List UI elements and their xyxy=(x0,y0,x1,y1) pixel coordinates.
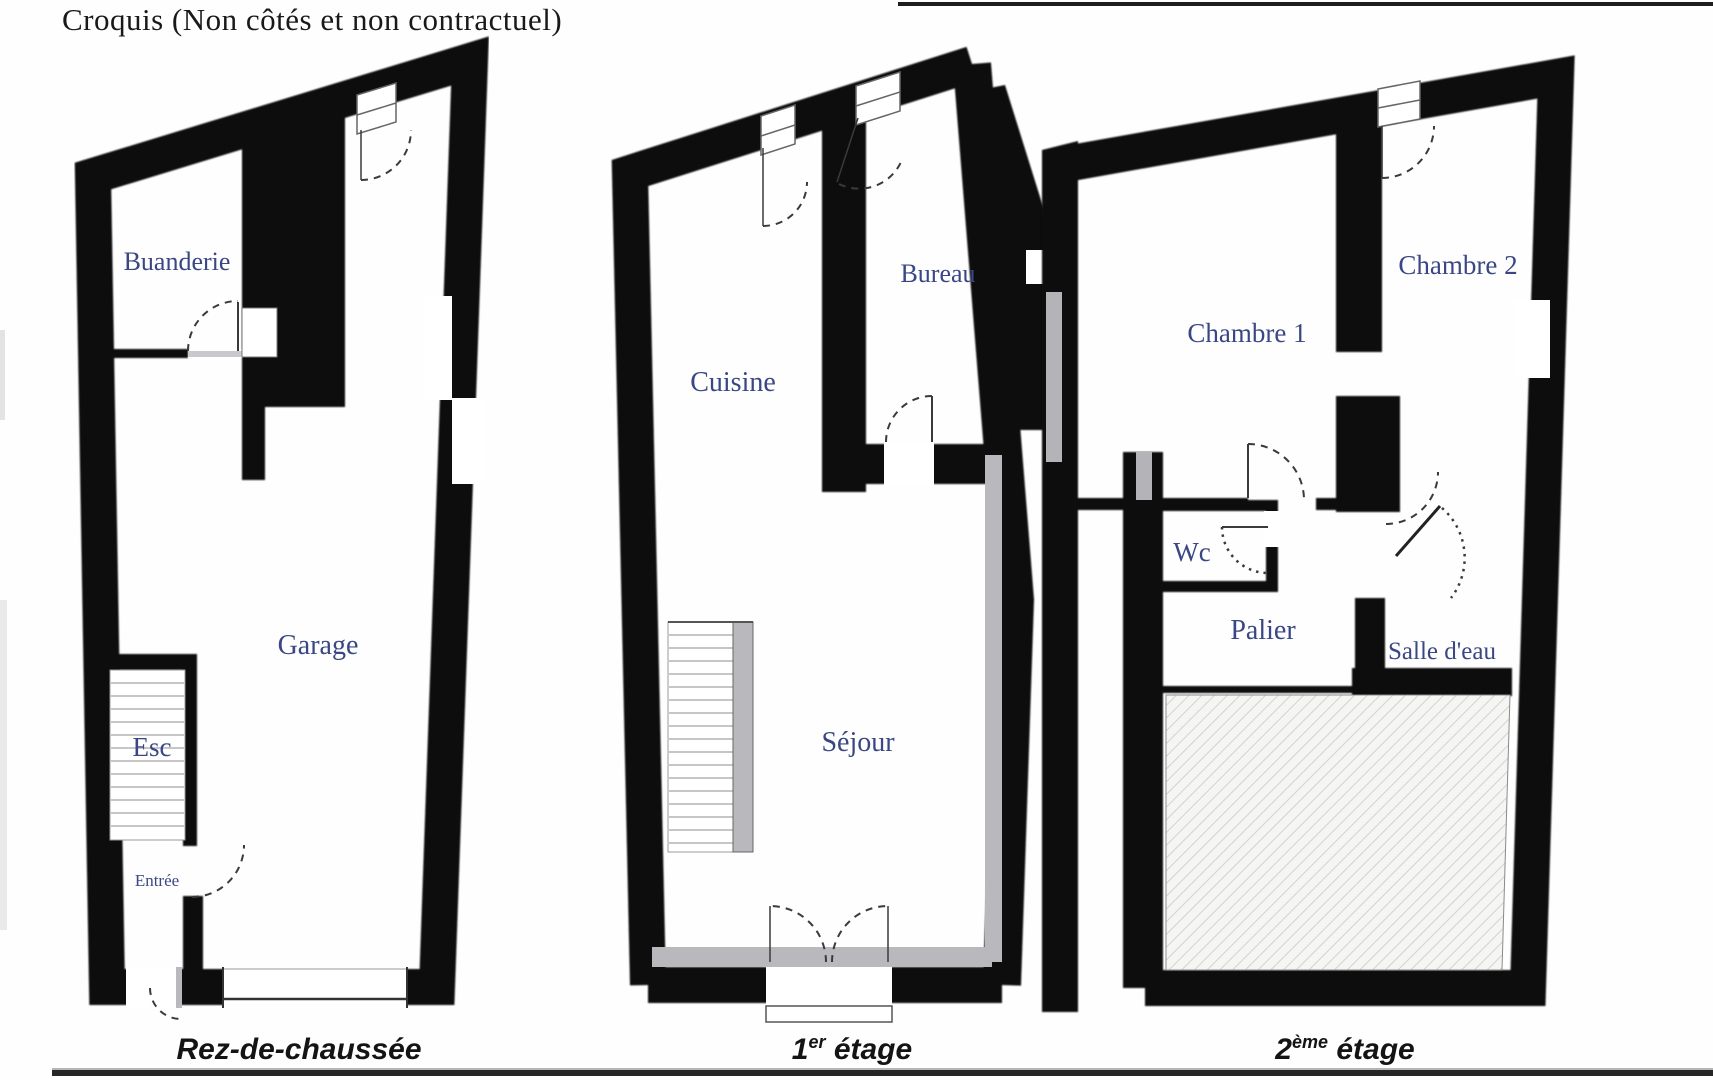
floor-caption-etage2: 2ème étage xyxy=(1275,1032,1414,1067)
buanderie-door-sill xyxy=(188,351,242,357)
room-label-chambre1: Chambre 1 xyxy=(1187,318,1306,348)
garage-door-gap xyxy=(223,967,407,1008)
french-door-stoop xyxy=(766,1006,892,1022)
hatched-void-area xyxy=(1166,695,1510,970)
room-label-entree: Entrée xyxy=(135,871,179,890)
salle-deau-bottom-wall xyxy=(1352,668,1512,696)
salle-deau-door-leaf xyxy=(1396,506,1440,556)
right-wall-notch-1 xyxy=(424,296,452,400)
buanderie-door-arc xyxy=(188,301,238,351)
chambre-divider-lower xyxy=(1336,396,1400,512)
bureau-door-gap xyxy=(884,442,934,486)
salle-deau-door-arc xyxy=(1442,508,1465,598)
bottom-rule-line xyxy=(52,1070,1713,1076)
chambre1-door-arc xyxy=(1248,444,1304,500)
corridor-gray-fitting xyxy=(1136,452,1152,500)
stair-door-arc xyxy=(192,845,244,897)
room-label-esc: Esc xyxy=(133,732,172,762)
room-label-salle-deau: Salle d'eau xyxy=(1388,638,1496,665)
floorplan-deuxieme-etage: Chambre 1 Chambre 2 Wc Palier Salle d'ea… xyxy=(1042,77,1556,1012)
cuisine-door-arc xyxy=(763,182,807,226)
interior-wall-cuisine xyxy=(822,106,866,492)
sejour-right-lining xyxy=(985,455,1002,962)
room-label-chambre2: Chambre 2 xyxy=(1398,250,1517,280)
room-label-palier: Palier xyxy=(1230,615,1296,646)
walls-rdc xyxy=(93,61,470,991)
left-wall-e2 xyxy=(1042,141,1078,1012)
bureau-door-arc xyxy=(886,396,932,442)
corridor-wall xyxy=(1123,452,1163,988)
floor-caption-rdc: Rez-de-chaussée xyxy=(176,1032,421,1067)
stair-top-wall xyxy=(95,654,195,670)
closet-nook xyxy=(242,308,277,357)
floorplan-premier-etage: Cuisine Bureau Séjour xyxy=(630,64,1055,1022)
room-label-cuisine: Cuisine xyxy=(690,367,776,398)
room-label-bureau: Bureau xyxy=(900,259,975,288)
wc-door-gap xyxy=(1264,511,1280,547)
floor-caption-etage1-suffix: étage xyxy=(825,1033,912,1066)
floorplans-canvas: Buanderie Garage Esc Entrée xyxy=(0,0,1713,1080)
room-label-wc: Wc xyxy=(1173,537,1210,567)
floorplan-rez-de-chaussee: Buanderie Garage Esc Entrée xyxy=(93,61,483,1019)
wc-top-wall xyxy=(1160,500,1278,511)
wc-door-arc xyxy=(1222,527,1268,573)
room-label-garage: Garage xyxy=(278,630,359,661)
wc-bottom-wall xyxy=(1160,581,1278,592)
floor-caption-rdc-text: Rez-de-chaussée xyxy=(176,1033,421,1066)
floor-caption-etage1: 1er étage xyxy=(792,1032,912,1067)
room-label-buanderie: Buanderie xyxy=(124,247,231,276)
buanderie-bottom-wall xyxy=(95,349,188,358)
staircase-etage1 xyxy=(668,622,753,852)
interior-wall-buanderie-garage xyxy=(242,84,345,480)
hatch-top-line xyxy=(1163,686,1355,693)
entry-door-leaf xyxy=(176,967,182,1008)
chambre-divider-upper xyxy=(1336,122,1382,352)
floor-caption-etage1-text: 1 xyxy=(792,1033,809,1066)
top-window-door-arc xyxy=(361,130,411,180)
floor-caption-etage1-sup: er xyxy=(808,1032,825,1052)
sejour-bottom-sill xyxy=(652,947,992,967)
entree-side-wall xyxy=(183,896,203,991)
left-wall-window-strip xyxy=(1046,292,1062,462)
chambre1-bottom-wall-right xyxy=(1316,498,1336,510)
right-wall-notch-2 xyxy=(452,398,483,484)
floor-caption-etage2-sup: ème xyxy=(1292,1032,1328,1052)
chambre2-window-arc xyxy=(1382,126,1434,178)
scanned-floorplan-page: Croquis (Non côtés et non contractuel) xyxy=(0,0,1713,1080)
room-label-sejour: Séjour xyxy=(821,727,895,758)
stair-stringer xyxy=(733,622,753,852)
right-wall-notch-e2 xyxy=(1514,300,1550,378)
french-door-gap xyxy=(766,966,892,1006)
floor-caption-etage2-text: 2 xyxy=(1275,1033,1292,1066)
floor-caption-etage2-suffix: étage xyxy=(1328,1033,1415,1066)
